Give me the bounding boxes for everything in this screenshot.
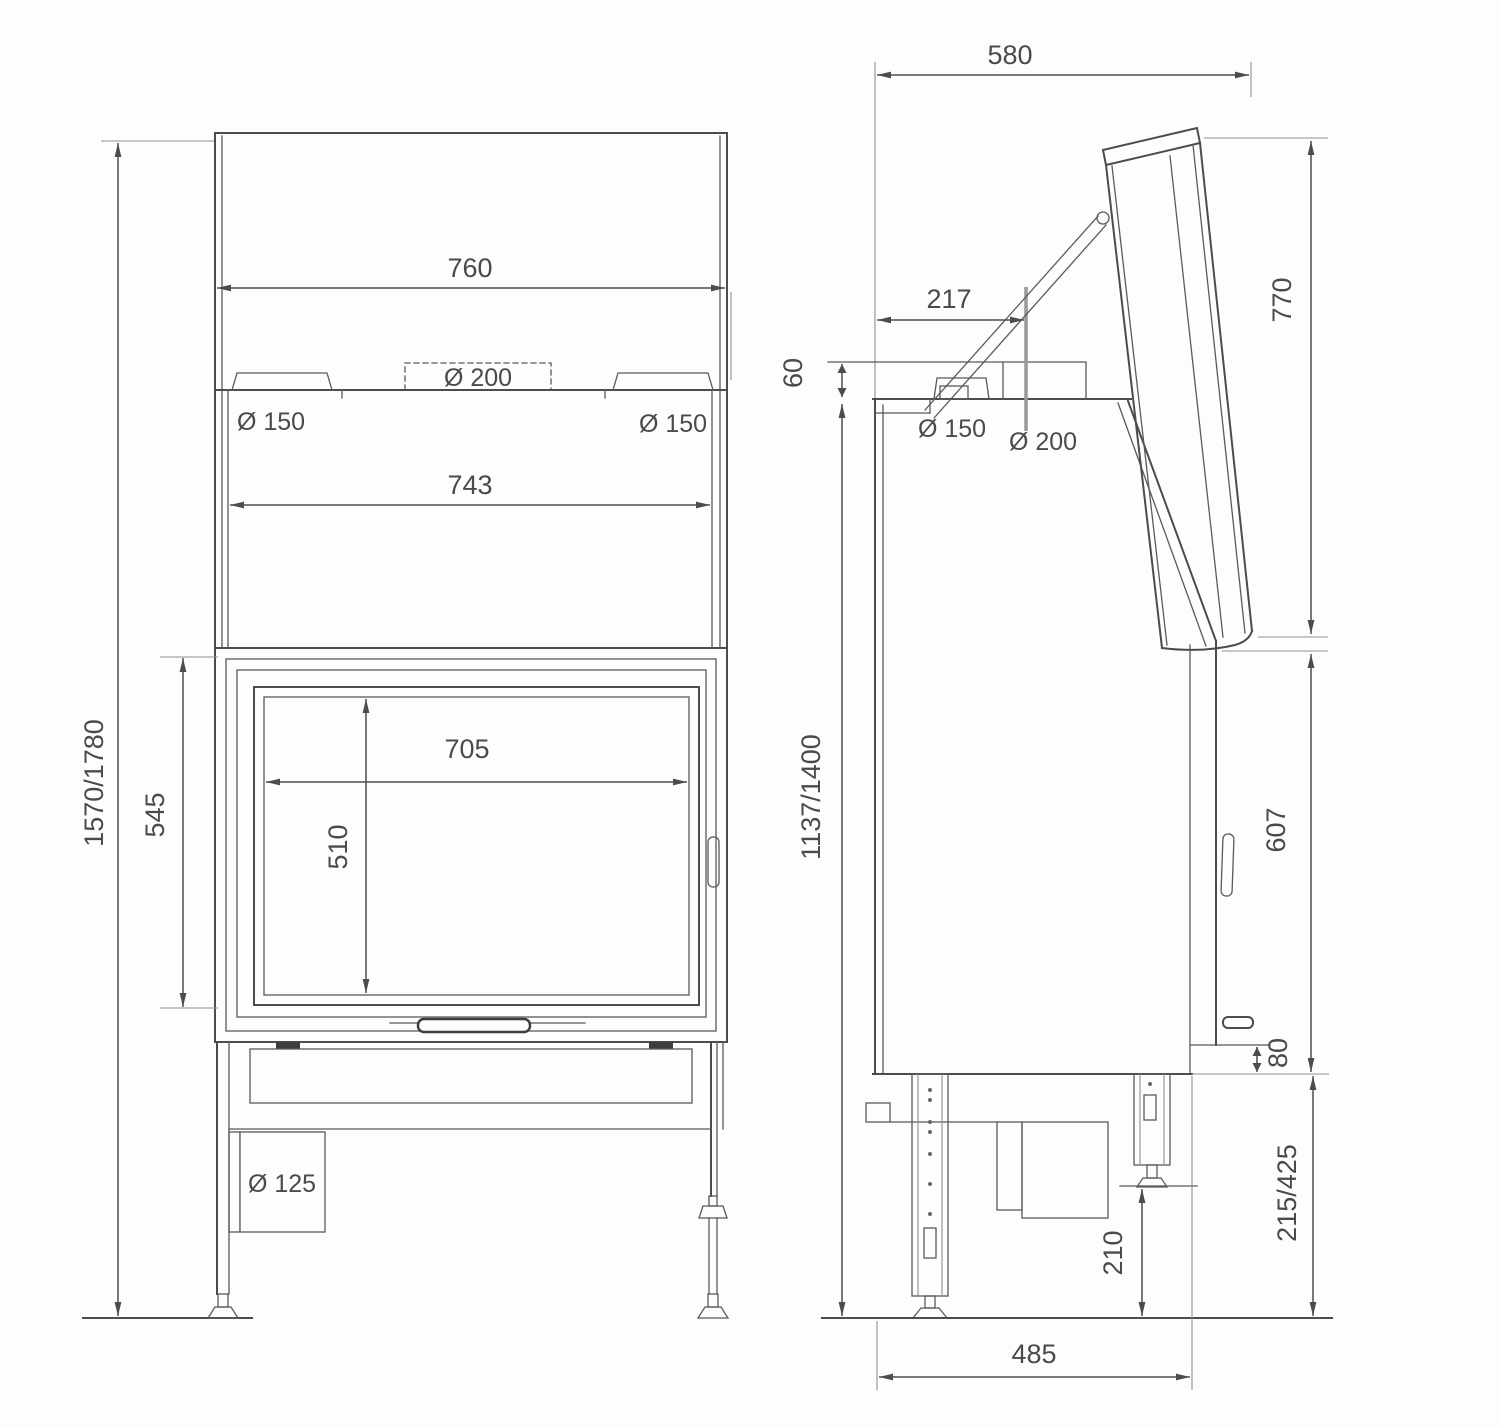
dim-front-height-label: 607: [1261, 807, 1291, 852]
air-inlet-duct: [229, 1132, 240, 1232]
side-body: [873, 62, 1329, 1074]
front-firebox-door: [215, 648, 727, 1042]
flue-center-label: Ø 200: [444, 364, 512, 392]
right-mid-foot-pad: [699, 1206, 727, 1218]
dim-door-height: 545: [140, 657, 218, 1008]
dim-foot-height-label: 210: [1098, 1230, 1128, 1275]
dim-open-door-height-label: 770: [1267, 277, 1297, 322]
left-foot-screw: [218, 1294, 228, 1307]
ash-box-small: [997, 1122, 1022, 1210]
side-view: Ø 150 Ø 200 580 217 60: [778, 40, 1332, 1390]
dim-overall-width-label: 760: [447, 253, 492, 283]
right-mid-foot-screw: [709, 1196, 717, 1206]
dim-inner-width-label: 743: [447, 470, 492, 500]
dim-glass-height: 510: [323, 699, 366, 993]
side-door-handle: [1221, 834, 1234, 896]
side-flue200-label: Ø 200: [1009, 428, 1077, 456]
side-collar-150: [934, 378, 989, 399]
front-base-frame: Ø 125: [217, 1042, 723, 1294]
door-top-cap: [1103, 128, 1200, 165]
strut-joint: [1097, 212, 1109, 224]
dim-body-height-label: 1137/1400: [796, 734, 826, 860]
door-support-strut: [925, 212, 1109, 418]
front-view: Ø 200 Ø 150 Ø 150 760 743 705: [79, 133, 731, 1318]
air-inlet-label: Ø 125: [248, 1170, 316, 1198]
right-foot-pad: [698, 1307, 728, 1318]
dim-depth: 580: [877, 40, 1251, 97]
left-foot-pad: [208, 1307, 238, 1318]
dim-glass-height-label: 510: [323, 824, 353, 869]
side-latch: [1223, 1017, 1253, 1028]
dim-base-depth-label: 485: [1011, 1339, 1056, 1369]
dim-open-door-height: 770: [1204, 138, 1328, 637]
rear-bracket: [866, 1103, 890, 1122]
base-recess-panel: [250, 1049, 692, 1103]
side-understructure: [822, 1074, 1332, 1318]
side-flue150-label: Ø 150: [918, 415, 986, 443]
dim-overall-width: 760: [217, 253, 725, 288]
right-foot-screw: [708, 1294, 718, 1307]
dim-glass-width: 705: [266, 734, 687, 782]
open-door: [1103, 128, 1252, 650]
dim-door-height-label: 545: [140, 792, 170, 837]
ash-box-large: [1022, 1122, 1108, 1218]
dim-collar-height-label: 60: [778, 358, 808, 388]
dim-foot-height: 210: [1098, 1189, 1142, 1316]
inclined-front-outer: [1128, 401, 1216, 641]
dim-bottom-step-label: 80: [1263, 1038, 1293, 1068]
fireplace-technical-drawing: Ø 200 Ø 150 Ø 150 760 743 705: [0, 0, 1500, 1427]
dim-overall-height-label: 1570/1780: [79, 719, 109, 847]
drawing-svg: Ø 200 Ø 150 Ø 150 760 743 705: [0, 0, 1500, 1427]
inclined-front-inner: [1118, 403, 1206, 646]
dim-depth-label: 580: [987, 40, 1032, 70]
dim-leg-range: 215/425: [1272, 1076, 1313, 1316]
door-bottom-handle: [418, 1019, 530, 1032]
flue-collar-right: [613, 373, 713, 390]
front-flue-collars: Ø 200 Ø 150 Ø 150: [232, 363, 713, 438]
dim-inner-width: 743: [230, 470, 710, 505]
flue-right-label: Ø 150: [639, 410, 707, 438]
flue-collar-left: [232, 373, 332, 390]
dim-body-height: 1137/1400: [796, 404, 842, 1316]
dim-flue-offset: 217: [877, 284, 1024, 320]
dim-collar-height: 60: [778, 358, 842, 397]
flue-left-label: Ø 150: [237, 408, 305, 436]
dim-leg-range-label: 215/425: [1272, 1144, 1302, 1242]
dim-flue-offset-label: 217: [926, 284, 971, 314]
door-side-handle: [708, 837, 719, 887]
dim-front-height: 607: [1222, 651, 1328, 1072]
dim-glass-width-label: 705: [444, 734, 489, 764]
dim-bottom-step: 80: [1257, 1038, 1293, 1072]
